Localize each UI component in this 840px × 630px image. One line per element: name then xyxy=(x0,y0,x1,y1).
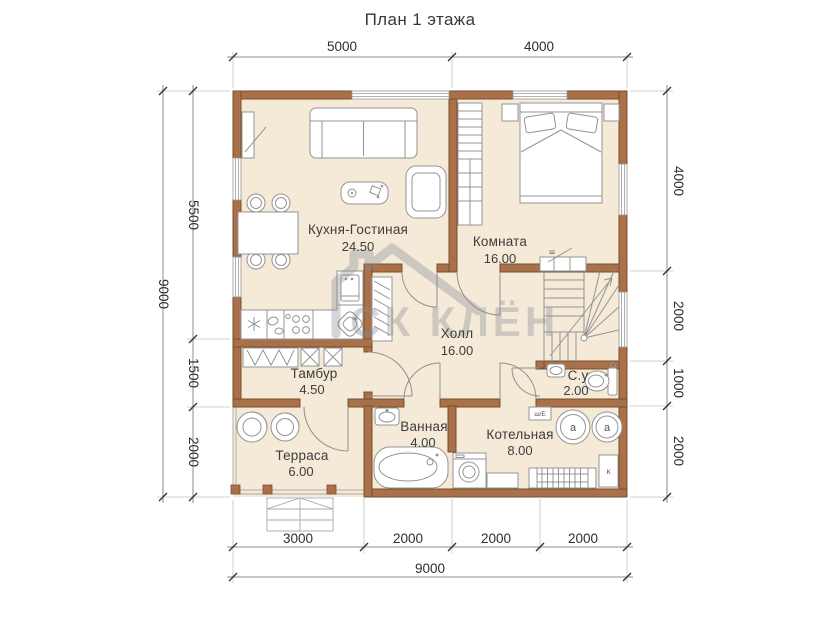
dim-left-total: 9000 xyxy=(156,279,171,309)
room-area-wc: 2.00 xyxy=(563,383,588,398)
room-area-boiler: 8.00 xyxy=(507,443,532,458)
meter-box-label: ш/Е xyxy=(534,411,546,418)
terrace-post xyxy=(327,485,336,494)
dim-top-left: 5000 xyxy=(327,39,357,54)
meter-box: ш/Е xyxy=(529,407,551,420)
sofa xyxy=(310,108,417,158)
water-heater xyxy=(487,473,518,488)
room-area-kitchen-living: 24.50 xyxy=(342,239,375,254)
room-area-tambour: 4.50 xyxy=(299,382,324,397)
window-bedroom-top xyxy=(513,91,567,99)
window-kitchen-left-1 xyxy=(233,158,241,200)
bedroom-wardrobe xyxy=(458,103,482,225)
dim-bottom-2000c: 2000 xyxy=(568,531,598,546)
dim-right-2000b: 2000 xyxy=(671,436,686,466)
dim-right-1000: 1000 xyxy=(671,368,686,398)
room-label-wc: С.у xyxy=(568,368,589,383)
room-label-bedroom: Комната xyxy=(473,234,528,249)
armchair xyxy=(406,166,446,218)
dim-right-4000: 4000 xyxy=(671,166,686,196)
room-label-terrace: Терраса xyxy=(275,448,328,463)
boiler-unit: к xyxy=(599,455,618,487)
terrace-post xyxy=(231,485,240,494)
window-kitchen-top xyxy=(352,91,449,99)
room-label-kitchen-living: Кухня-Гостиная xyxy=(308,222,408,237)
room-area-bedroom: 16.00 xyxy=(484,251,517,266)
window-kitchen-left-2 xyxy=(233,257,241,297)
coffee-table xyxy=(341,182,388,204)
page-title: План 1 этажа xyxy=(365,10,476,29)
entry-steps xyxy=(267,498,333,531)
washing-machine xyxy=(453,453,486,488)
room-area-terrace: 6.00 xyxy=(288,464,313,479)
room-label-bathroom: Ванная xyxy=(400,419,447,434)
room-label-tambour: Тамбур xyxy=(290,366,337,381)
room-area-bathroom: 4.00 xyxy=(410,435,435,450)
window-bedroom-right xyxy=(619,164,627,215)
tank-label: a xyxy=(604,422,611,434)
dim-bottom-3000: 3000 xyxy=(283,531,313,546)
bathroom-sink xyxy=(375,408,399,425)
dim-right-2000a: 2000 xyxy=(671,301,686,331)
coat-rack xyxy=(243,348,298,367)
tank-label: a xyxy=(570,422,577,434)
dim-left-2000: 2000 xyxy=(186,437,201,467)
bathtub xyxy=(374,447,448,488)
room-area-hall: 16.00 xyxy=(441,343,474,358)
floor-plan-page: ш xyxy=(0,0,840,630)
window-stairs-right xyxy=(619,292,627,347)
dim-bottom-2000a: 2000 xyxy=(393,531,423,546)
boiler-unit-label: к xyxy=(607,467,611,476)
dim-top-right: 4000 xyxy=(524,39,554,54)
room-label-boiler: Котельная xyxy=(486,427,553,442)
room-label-hall: Холл xyxy=(441,326,474,341)
floor-plan-drawing: ш xyxy=(0,0,840,630)
bed xyxy=(502,103,619,203)
dim-left-1500: 1500 xyxy=(186,358,201,388)
dim-bottom-2000b: 2000 xyxy=(481,531,511,546)
dim-bottom-total: 9000 xyxy=(415,561,445,576)
terrace-post xyxy=(263,485,272,494)
dresser-mark: ш xyxy=(549,249,555,256)
dim-left-5500: 5500 xyxy=(186,200,201,230)
radiator xyxy=(529,468,596,488)
